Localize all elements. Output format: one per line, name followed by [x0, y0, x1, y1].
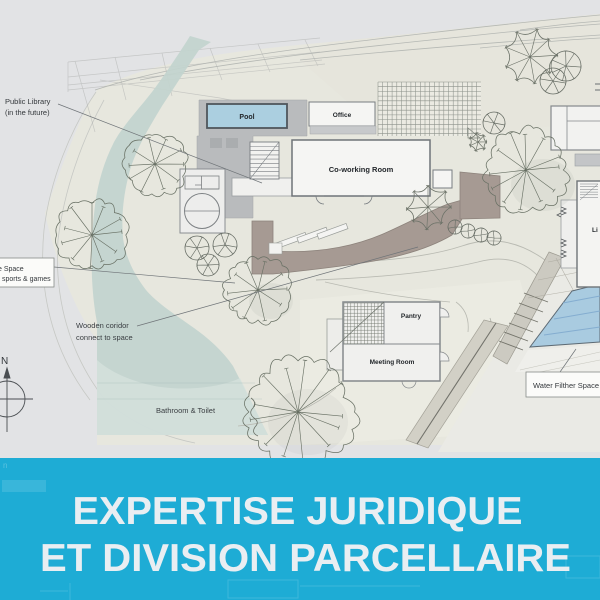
svg-text:Co-working Room: Co-working Room — [329, 165, 394, 174]
svg-text:EXPERTISE JURIDIQUE: EXPERTISE JURIDIQUE — [73, 490, 523, 533]
svg-text:sports & games: sports & games — [2, 276, 51, 283]
svg-text:Office: Office — [333, 112, 352, 119]
svg-text:(in the future): (in the future) — [5, 108, 50, 117]
svg-text:Li: Li — [592, 227, 598, 234]
svg-text:Public Library: Public Library — [5, 97, 51, 106]
svg-text:N: N — [1, 356, 8, 367]
svg-text:e Space: e Space — [0, 266, 24, 273]
svg-text:Pool: Pool — [239, 114, 254, 121]
svg-text:Bathroom & Toilet: Bathroom & Toilet — [156, 406, 216, 415]
svg-text:Wooden coridor: Wooden coridor — [76, 321, 129, 330]
svg-text:Meeting Room: Meeting Room — [370, 359, 415, 366]
svg-text:Water Filther Space: Water Filther Space — [533, 381, 599, 390]
svg-text:connect to space: connect to space — [76, 333, 133, 342]
svg-text:n: n — [3, 461, 7, 470]
svg-text:Pantry: Pantry — [401, 313, 422, 320]
svg-text:ET DIVISION PARCELLAIRE: ET DIVISION PARCELLAIRE — [40, 537, 571, 580]
